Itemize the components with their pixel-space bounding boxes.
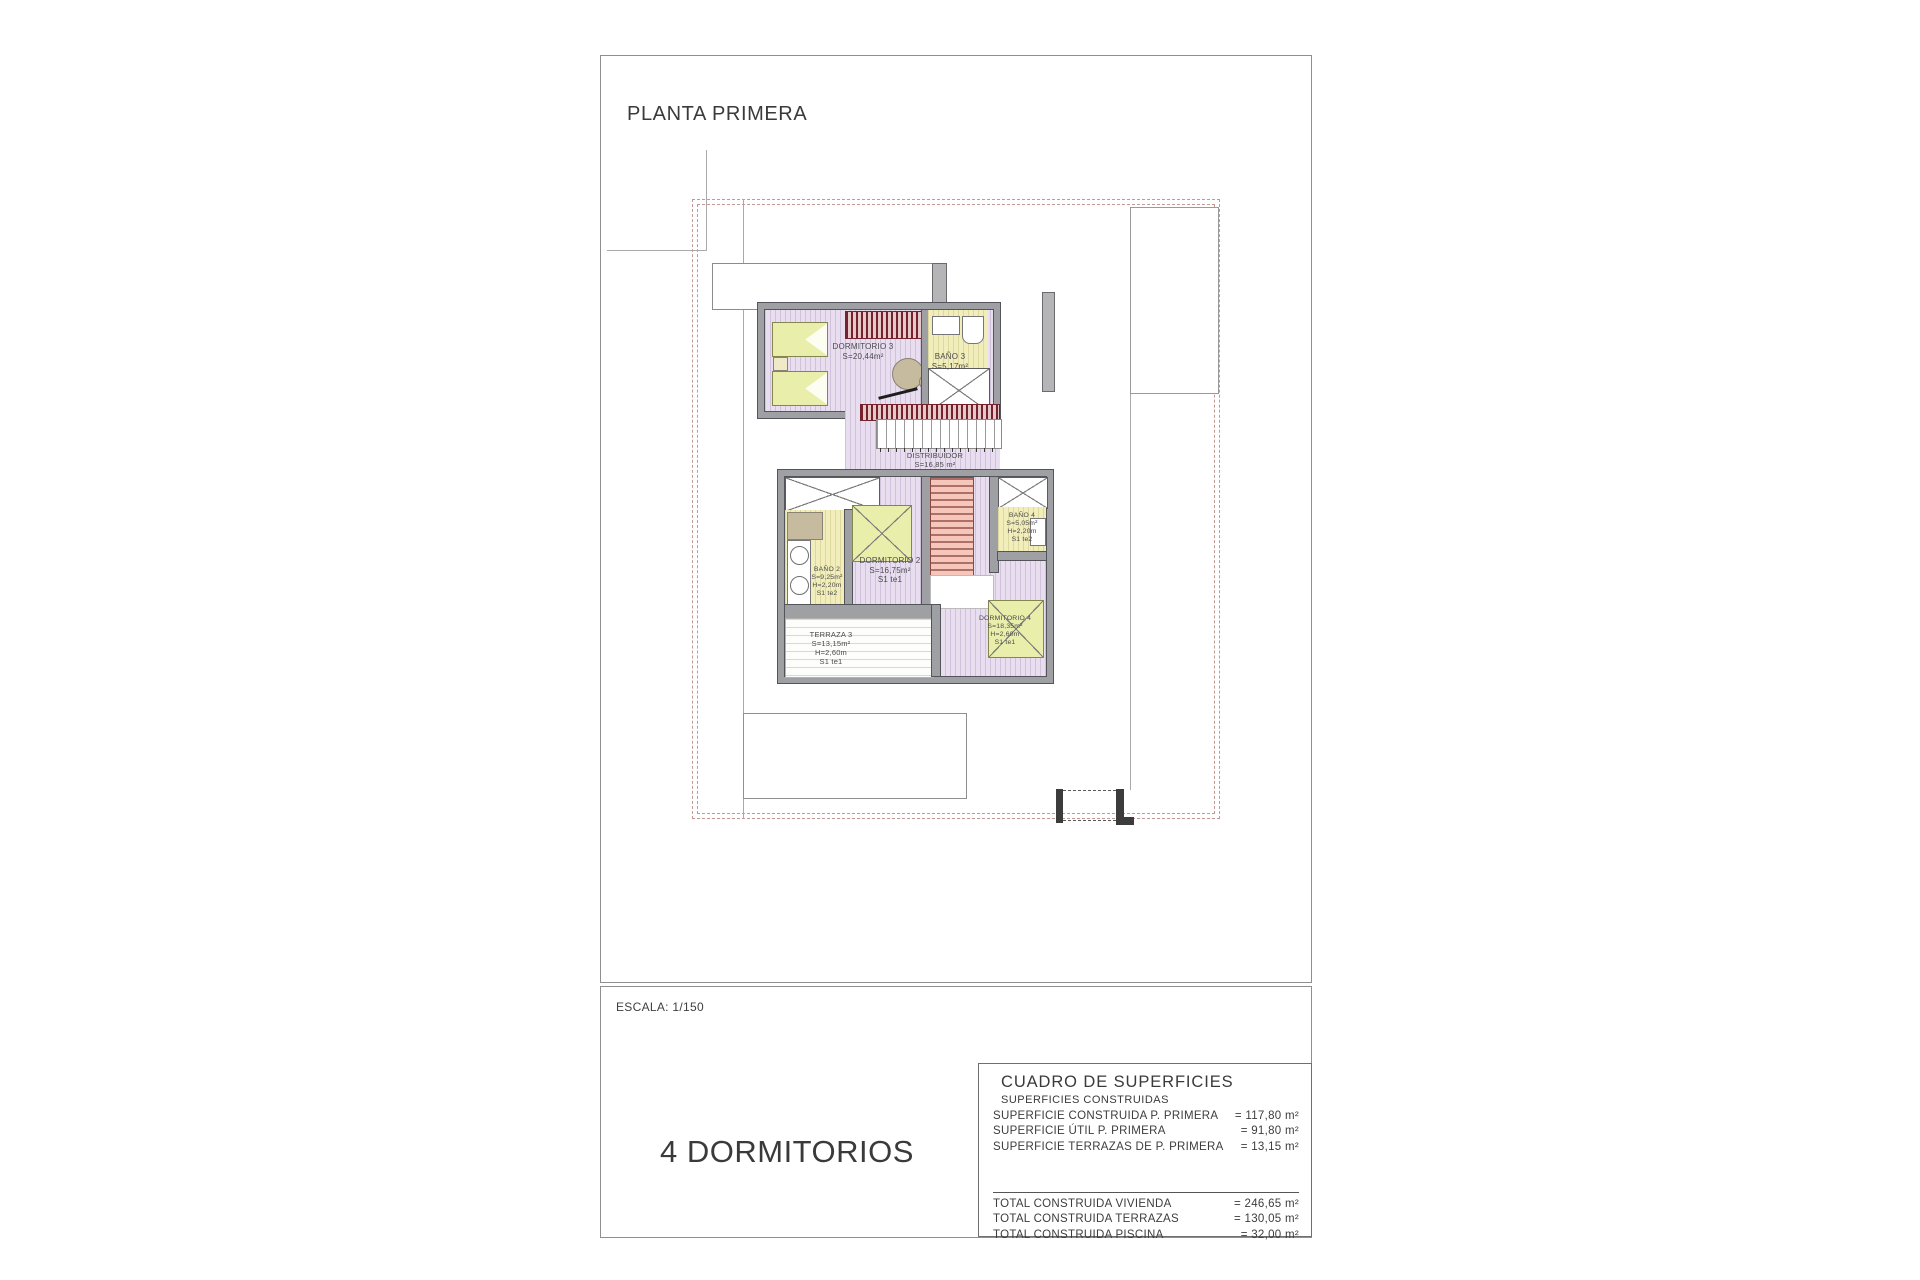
room-area: S=20,44m² [828,352,898,362]
plot-division-line-right [1130,392,1131,790]
closet-bano4 [998,477,1048,509]
room-note: S1 te1 [852,575,928,585]
room-height: H=2,20m [996,528,1048,536]
wall-terraza-dorm4 [932,605,940,676]
room-label-dormitorio2: DORMITORIO 2 S=16,75m² S1 te1 [852,556,928,585]
room-height: H=2,20m [800,582,854,590]
page-title: PLANTA PRIMERA [627,103,807,126]
bed-single-top [772,322,828,357]
bed-single-bottom [772,371,828,406]
room-note: S1 te1 [800,657,862,666]
room-label-bano2: BAÑO 2 S=9,25m² H=2,20m S1 te2 [800,566,854,599]
table-row: TOTAL CONSTRUIDA VIVIENDA = 246,65 m² [993,1196,1299,1212]
toilet-bano2 [790,546,809,565]
room-area: S=13,15m² [800,639,862,648]
room-area: S=16,75m² [852,566,928,576]
gate-dash-top [1063,790,1116,791]
gate-dash-bottom [1063,820,1116,821]
row-label: TOTAL CONSTRUIDA VIVIENDA [993,1198,1172,1210]
room-label-distribuidor: DISTRIBUIDOR S=16,85 m² [895,451,975,469]
row-value: = 130,05 m² [1234,1213,1299,1225]
nightstand [773,357,788,371]
room-label-terraza3: TERRAZA 3 S=13,15m² H=2,60m S1 te1 [800,630,862,666]
row-value: = 13,15 m² [1241,1141,1299,1153]
scale-label: ESCALA: 1/150 [616,1000,704,1014]
room-area: S=5,05m² [996,520,1048,528]
room-height: H=2,60m [972,631,1038,639]
row-label: SUPERFICIE ÚTIL P. PRIMERA [993,1125,1166,1137]
wall-dorm2-stairs [922,477,930,612]
room-area: S=9,25m² [800,574,854,582]
room-label-dormitorio4: DORMITORIO 4 S=18,35m² H=2,60m S1 te1 [972,615,1038,648]
row-label: TOTAL CONSTRUIDA TERRAZAS [993,1213,1179,1225]
table-row: SUPERFICIE TERRAZAS DE P. PRIMERA = 13,1… [993,1139,1299,1155]
table-row: SUPERFICIE CONSTRUIDA P. PRIMERA = 117,8… [993,1108,1299,1124]
surface-table-subtitle: SUPERFICIES CONSTRUIDAS [1001,1094,1169,1106]
surface-table-rows: SUPERFICIE CONSTRUIDA P. PRIMERA = 117,8… [993,1108,1299,1155]
room-name: BAÑO 4 [996,512,1048,520]
room-note: S1 te2 [996,536,1048,544]
room-name: DORMITORIO 3 [828,342,898,352]
table-row: SUPERFICIE ÚTIL P. PRIMERA = 91,80 m² [993,1124,1299,1140]
pool-slab [743,713,967,799]
surface-table-title: CUADRO DE SUPERFICIES [1001,1073,1234,1092]
surface-table-totals: TOTAL CONSTRUIDA VIVIENDA = 246,65 m² TO… [993,1192,1299,1243]
row-label: TOTAL CONSTRUIDA PISCINA [993,1229,1164,1241]
table-row: TOTAL CONSTRUIDA PISCINA = 32,00 m² [993,1227,1299,1243]
gate-post-left [1056,789,1063,823]
room-label-bano4: BAÑO 4 S=5,05m² H=2,20m S1 te2 [996,512,1048,545]
row-value: = 117,80 m² [1235,1110,1299,1122]
room-area: S=5,17m² [922,362,978,372]
row-value: = 32,00 m² [1241,1229,1299,1241]
drawing-page: PLANTA PRIMERA [0,0,1920,1280]
wall-terraza [785,605,940,618]
room-name: BAÑO 2 [800,566,854,574]
room-area: S=18,35m² [972,623,1038,631]
room-name: DORMITORIO 4 [972,615,1038,623]
row-value: = 246,65 m² [1234,1198,1299,1210]
bed-dormitorio2 [852,505,912,562]
sink-bano3 [932,316,960,335]
toilet-bano3 [962,316,984,344]
bed-fold [803,372,827,405]
room-area: S=16,85 m² [895,460,975,469]
wardrobe-dormitorio3 [845,311,933,339]
room-note: S1 te2 [800,590,854,598]
stair-landing [930,575,994,609]
room-name: TERRAZA 3 [800,630,862,639]
surface-table: CUADRO DE SUPERFICIES SUPERFICIES CONSTR… [978,1063,1312,1237]
room-label-dormitorio3: DORMITORIO 3 S=20,44m² [828,342,898,361]
counter-bano2 [787,512,823,540]
staircase-upper-flight [876,419,1002,449]
room-name: DISTRIBUIDOR [895,451,975,460]
table-row: TOTAL CONSTRUIDA TERRAZAS = 130,05 m² [993,1212,1299,1228]
row-value: = 91,80 m² [1241,1125,1299,1137]
neighbour-building [1130,207,1219,394]
room-name: BAÑO 3 [922,352,978,362]
room-note: S1 te1 [972,639,1038,647]
side-terrace-wall [1042,292,1055,392]
room-height: H=2,60m [800,648,862,657]
row-label: SUPERFICIE CONSTRUIDA P. PRIMERA [993,1110,1218,1122]
variant-label: 4 DORMITORIOS [660,1134,914,1170]
wall-bano4-dorm4 [998,552,1046,560]
bed-fold [803,323,827,356]
row-label: SUPERFICIE TERRAZAS DE P. PRIMERA [993,1141,1224,1153]
room-name: DORMITORIO 2 [852,556,928,566]
gate-post-right-foot [1116,817,1134,825]
staircase-lower-flight [930,477,974,577]
room-label-bano3: BAÑO 3 S=5,17m² [922,352,978,371]
